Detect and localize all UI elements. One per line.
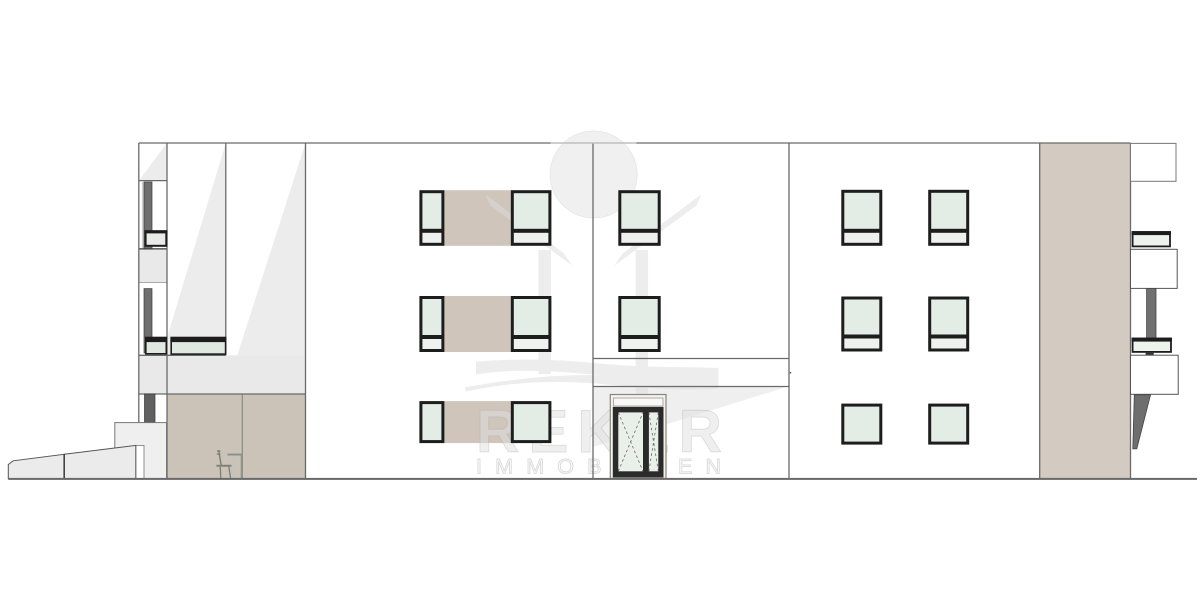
svg-text:IMMOBILIEN: IMMOBILIEN [476,455,721,479]
